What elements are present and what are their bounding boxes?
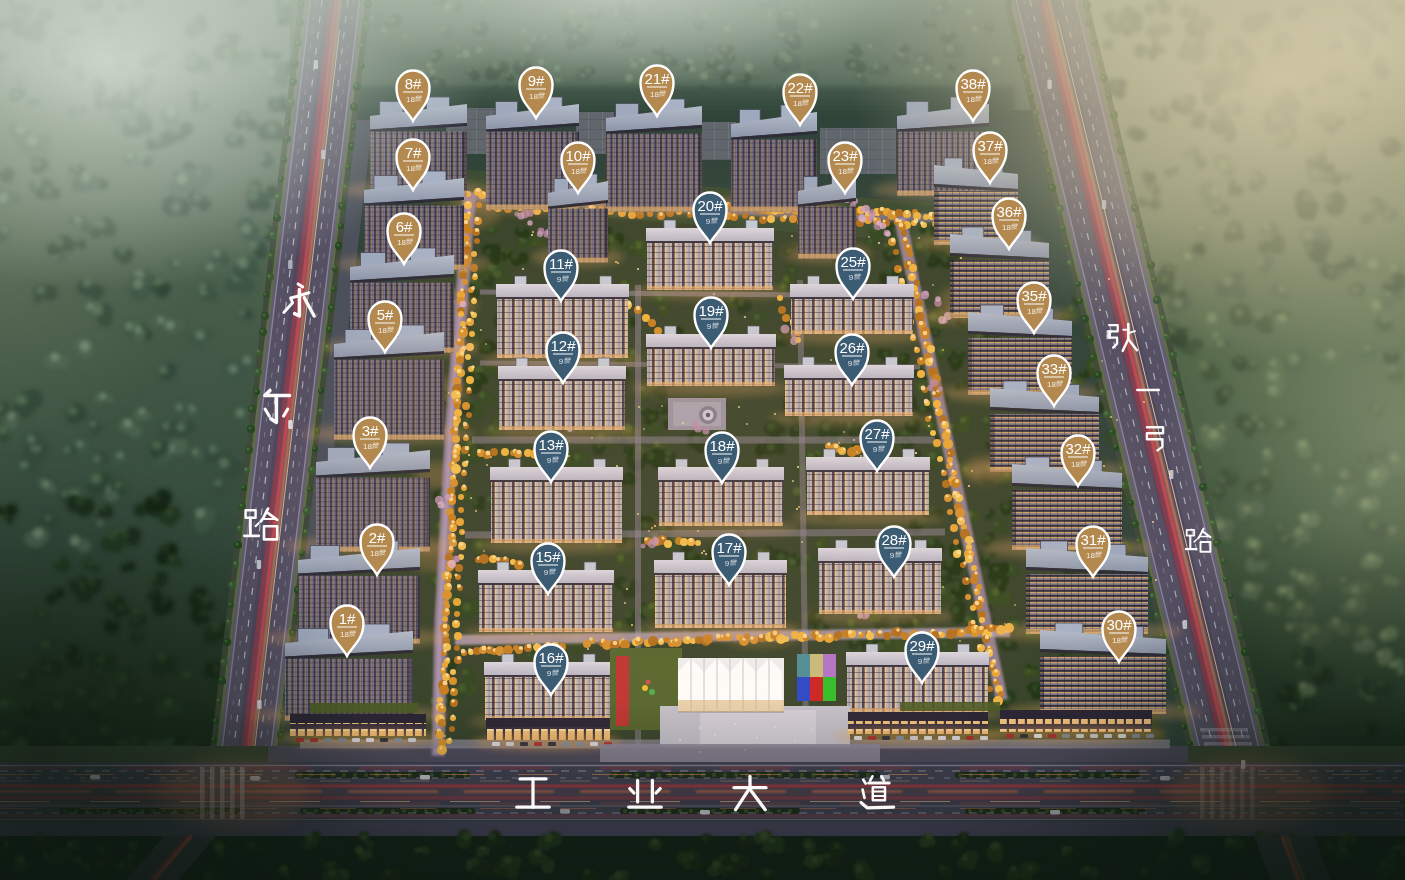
svg-text:9#: 9# (528, 72, 545, 89)
svg-text:17#: 17# (716, 539, 742, 556)
svg-text:27#: 27# (864, 425, 890, 442)
svg-text:15#: 15# (535, 548, 561, 565)
svg-text:9: 9 (559, 357, 564, 366)
svg-text:35#: 35# (1021, 287, 1047, 304)
svg-text:33#: 33# (1041, 360, 1067, 377)
svg-text:10#: 10# (565, 147, 591, 164)
svg-text:3#: 3# (362, 422, 379, 439)
svg-text:11#: 11# (549, 255, 574, 272)
svg-text:9: 9 (849, 273, 854, 282)
svg-text:18: 18 (1112, 636, 1121, 645)
svg-text:9: 9 (557, 275, 562, 284)
svg-text:18: 18 (370, 549, 379, 558)
svg-text:9: 9 (707, 322, 712, 331)
svg-text:13#: 13# (538, 436, 564, 453)
svg-text:12#: 12# (550, 337, 576, 354)
svg-text:18: 18 (1086, 551, 1095, 560)
svg-text:9: 9 (848, 359, 853, 368)
svg-text:18: 18 (1047, 380, 1056, 389)
svg-text:18: 18 (340, 630, 349, 639)
svg-text:38#: 38# (960, 75, 986, 92)
svg-text:9: 9 (547, 669, 552, 678)
svg-text:29#: 29# (909, 637, 935, 654)
svg-text:16#: 16# (538, 649, 564, 666)
svg-text:9: 9 (918, 657, 923, 666)
svg-text:18: 18 (793, 99, 802, 108)
svg-text:18: 18 (1071, 460, 1080, 469)
svg-text:25#: 25# (840, 253, 866, 270)
svg-text:32#: 32# (1065, 440, 1091, 457)
svg-text:9: 9 (725, 559, 730, 568)
svg-text:28#: 28# (881, 531, 907, 548)
svg-text:18: 18 (966, 95, 975, 104)
svg-text:2#: 2# (369, 529, 386, 546)
svg-text:5#: 5# (377, 306, 394, 323)
svg-text:18: 18 (838, 167, 847, 176)
svg-text:18: 18 (1002, 223, 1011, 232)
svg-text:22#: 22# (787, 79, 813, 96)
svg-text:18: 18 (1027, 307, 1036, 316)
svg-text:18: 18 (406, 164, 415, 173)
svg-text:18: 18 (650, 90, 659, 99)
svg-text:21#: 21# (644, 70, 670, 87)
svg-text:1#: 1# (339, 610, 356, 627)
svg-text:18: 18 (397, 238, 406, 247)
svg-text:18: 18 (378, 326, 387, 335)
svg-text:18: 18 (983, 157, 992, 166)
svg-text:9: 9 (890, 551, 895, 560)
svg-text:20#: 20# (697, 197, 723, 214)
svg-text:26#: 26# (839, 339, 865, 356)
svg-text:18: 18 (363, 442, 372, 451)
svg-text:18#: 18# (709, 437, 735, 454)
svg-text:18: 18 (529, 92, 538, 101)
svg-text:9: 9 (718, 457, 723, 466)
svg-text:23#: 23# (832, 147, 858, 164)
svg-text:9: 9 (873, 445, 878, 454)
svg-text:8#: 8# (405, 75, 422, 92)
svg-text:9: 9 (547, 456, 552, 465)
svg-text:9: 9 (544, 568, 549, 577)
svg-text:18: 18 (406, 95, 415, 104)
svg-text:36#: 36# (996, 203, 1022, 220)
svg-text:7#: 7# (405, 144, 422, 161)
svg-text:19#: 19# (698, 302, 724, 319)
svg-text:6#: 6# (396, 218, 413, 235)
svg-text:37#: 37# (977, 137, 1003, 154)
svg-text:30#: 30# (1106, 616, 1132, 633)
svg-text:9: 9 (706, 217, 711, 226)
svg-text:18: 18 (571, 167, 580, 176)
svg-text:31#: 31# (1080, 531, 1106, 548)
